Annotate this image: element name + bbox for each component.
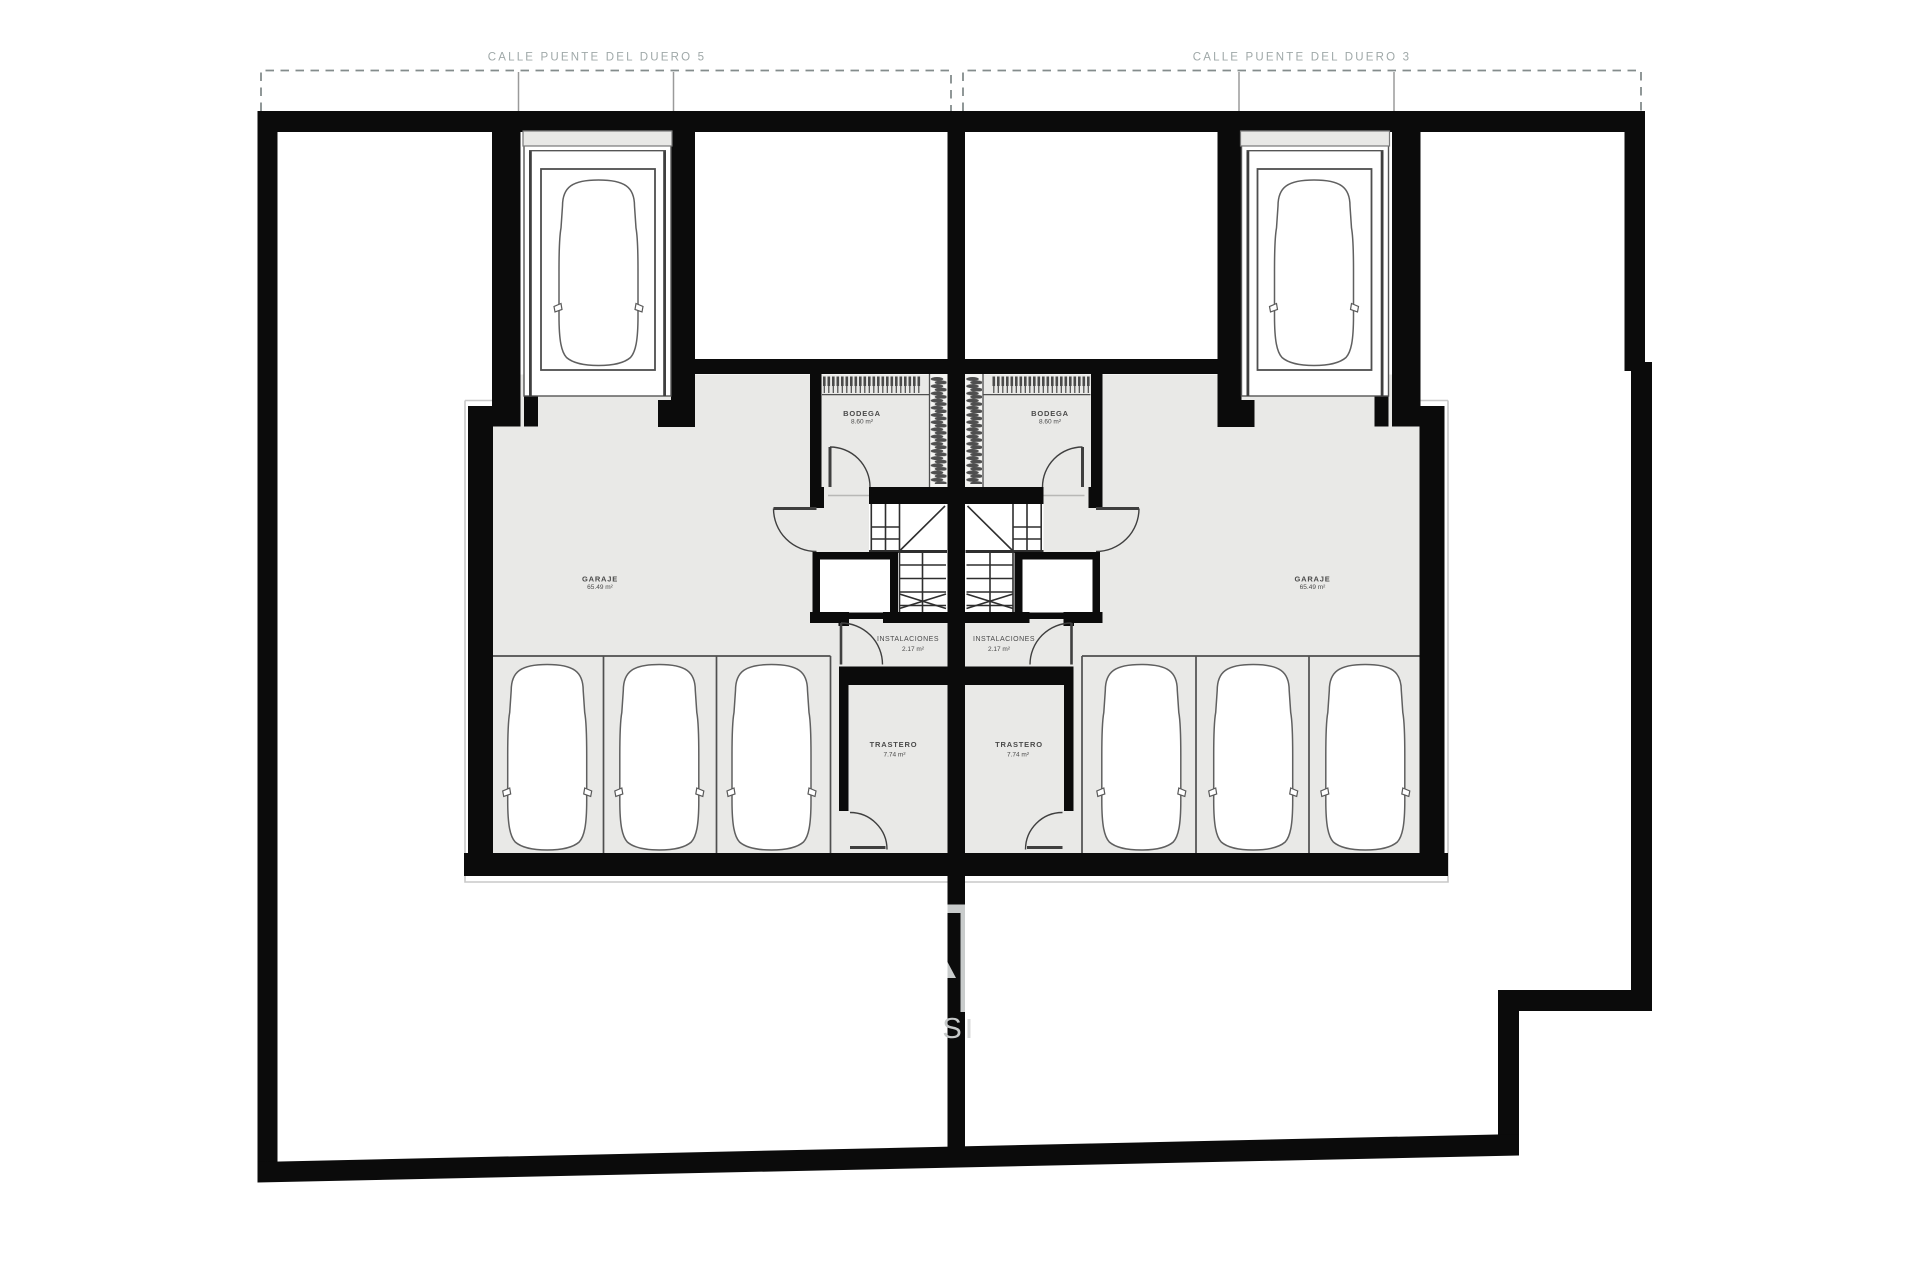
- svg-text:CALLE PUENTE DEL DUERO 5: CALLE PUENTE DEL DUERO 5: [488, 52, 707, 64]
- svg-text:BODEGA: BODEGA: [1031, 409, 1069, 418]
- svg-text:S: S: [942, 1013, 961, 1045]
- svg-text:8.60 m²: 8.60 m²: [851, 419, 874, 426]
- svg-text:CALLE PUENTE DEL DUERO 3: CALLE PUENTE DEL DUERO 3: [1193, 52, 1412, 64]
- svg-text:BODEGA: BODEGA: [843, 409, 881, 418]
- svg-text:GARAJE: GARAJE: [1294, 575, 1330, 584]
- svg-text:8.60 m²: 8.60 m²: [1039, 419, 1062, 426]
- svg-text:GARAJE: GARAJE: [582, 575, 618, 584]
- svg-text:INSTALACIONES: INSTALACIONES: [877, 636, 939, 643]
- svg-text:INSTALACIONES: INSTALACIONES: [973, 636, 1035, 643]
- svg-text:TRASTERO: TRASTERO: [995, 740, 1043, 749]
- svg-text:2.17 m²: 2.17 m²: [988, 646, 1011, 653]
- svg-text:65.49 m²: 65.49 m²: [587, 584, 613, 591]
- svg-text:7.74 m²: 7.74 m²: [883, 752, 906, 759]
- svg-text:2.17 m²: 2.17 m²: [902, 646, 925, 653]
- svg-text:65.49 m²: 65.49 m²: [1300, 584, 1326, 591]
- svg-text:TRASTERO: TRASTERO: [870, 740, 918, 749]
- svg-text:7.74 m²: 7.74 m²: [1007, 752, 1030, 759]
